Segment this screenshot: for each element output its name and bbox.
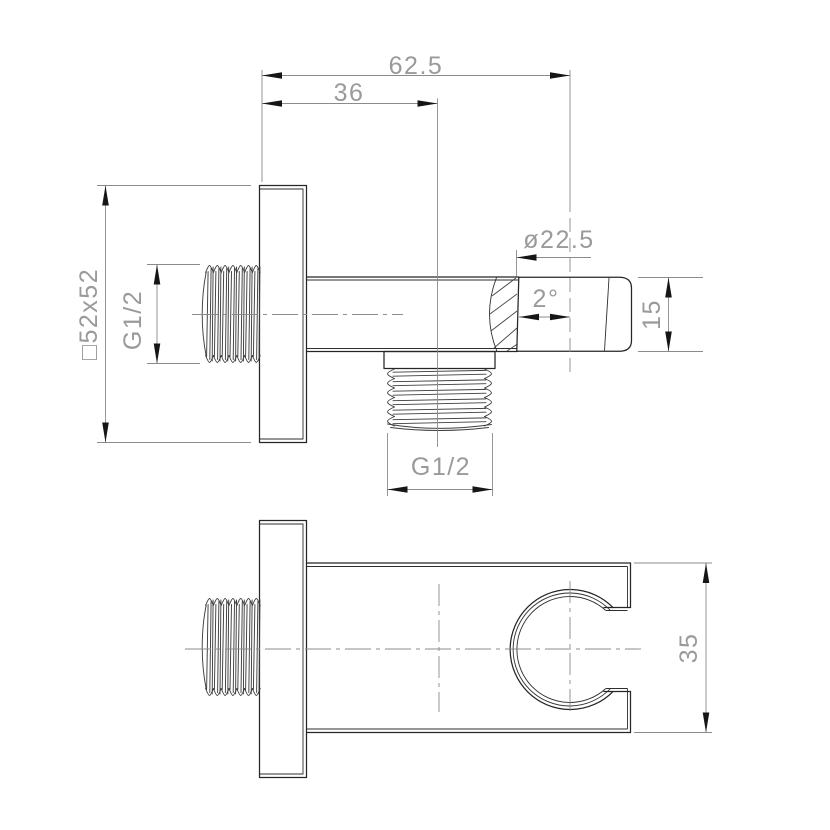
dim-label-holder-cone-height: 15 bbox=[638, 299, 666, 330]
dim-label-holder-cone-diameter: ø22.5 bbox=[523, 226, 594, 254]
dim-overall-depth: 62.5 bbox=[262, 52, 570, 182]
lower-view: 35 bbox=[185, 521, 712, 778]
dim-wall-plate-size: □52x52 bbox=[75, 186, 251, 443]
outlet-thread bbox=[388, 369, 492, 431]
inlet-thread bbox=[202, 266, 260, 363]
dim-label-holder-cone-angle: 2° bbox=[533, 285, 560, 313]
bracket-body bbox=[307, 563, 631, 733]
dim-label-overall-depth: 62.5 bbox=[389, 52, 444, 80]
technical-drawing: 62.5 36 ø22.5 2° bbox=[0, 0, 830, 830]
handset-cradle-ring bbox=[510, 590, 613, 710]
inlet-thread-front bbox=[202, 599, 260, 696]
dim-label-wall-plate-size: □52x52 bbox=[75, 268, 103, 360]
dim-outlet-thread: G1/2 bbox=[388, 433, 493, 496]
outlet-collar bbox=[384, 352, 495, 369]
dim-label-wall-plate-offset: 36 bbox=[334, 79, 365, 107]
wall-flange bbox=[260, 186, 307, 443]
swivel-hatch bbox=[490, 278, 518, 352]
dim-wall-plate-offset: 36 bbox=[262, 79, 438, 107]
technical-drawing-page: 62.5 36 ø22.5 2° bbox=[0, 0, 830, 830]
dim-bracket-height: 35 bbox=[634, 563, 712, 733]
body-tube bbox=[307, 277, 519, 352]
dim-label-bracket-height: 35 bbox=[675, 633, 703, 664]
dim-label-inlet-thread: G1/2 bbox=[119, 290, 147, 350]
dim-holder-cone-height: 15 bbox=[638, 278, 703, 352]
dim-holder-cone-diameter: ø22.5 bbox=[517, 226, 595, 277]
dim-inlet-thread: G1/2 bbox=[119, 265, 200, 364]
dim-label-outlet-thread: G1/2 bbox=[411, 453, 471, 481]
upper-view: 62.5 36 ø22.5 2° bbox=[75, 52, 703, 496]
dim-holder-cone-angle: 2° bbox=[519, 285, 570, 320]
